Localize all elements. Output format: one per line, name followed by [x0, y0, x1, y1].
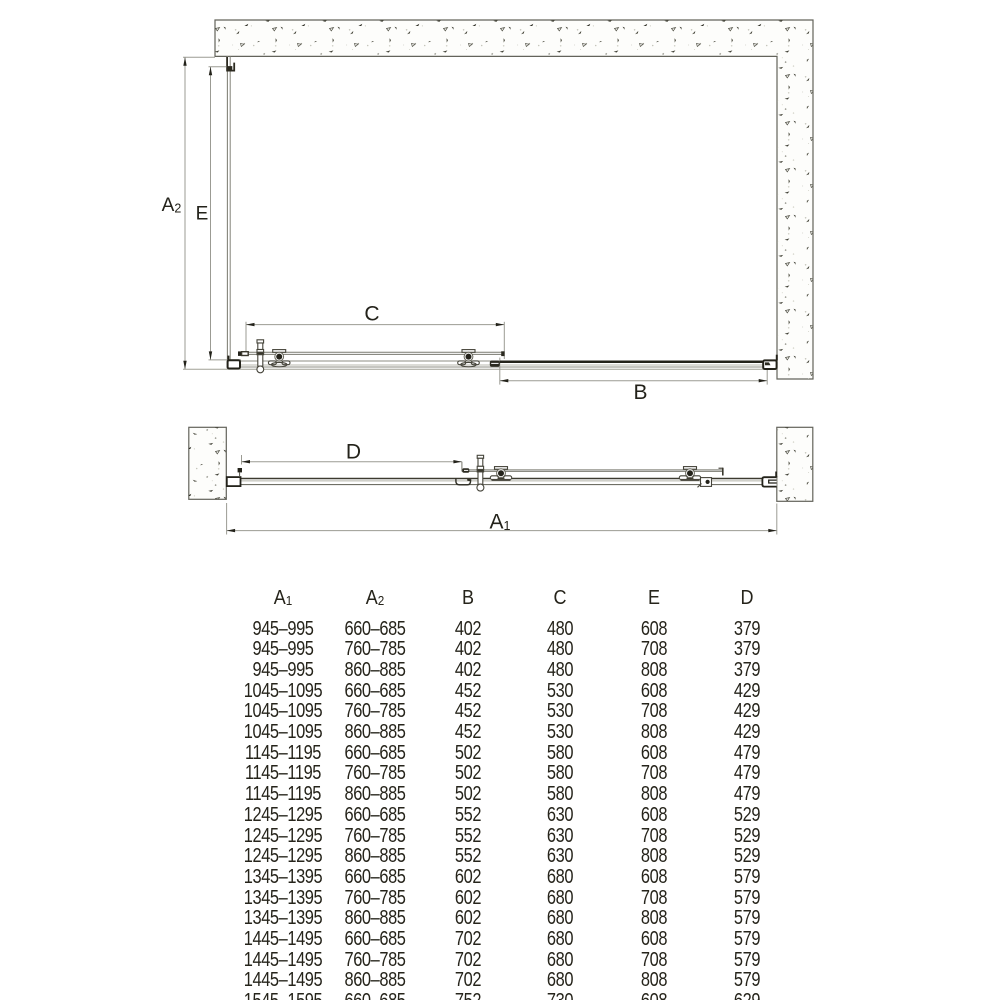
- svg-text:A1: A1: [490, 510, 511, 533]
- svg-text:B: B: [633, 381, 647, 404]
- svg-text:E: E: [196, 204, 209, 225]
- svg-text:D: D: [346, 440, 361, 463]
- svg-text:A2: A2: [162, 195, 182, 216]
- svg-text:C: C: [364, 302, 379, 325]
